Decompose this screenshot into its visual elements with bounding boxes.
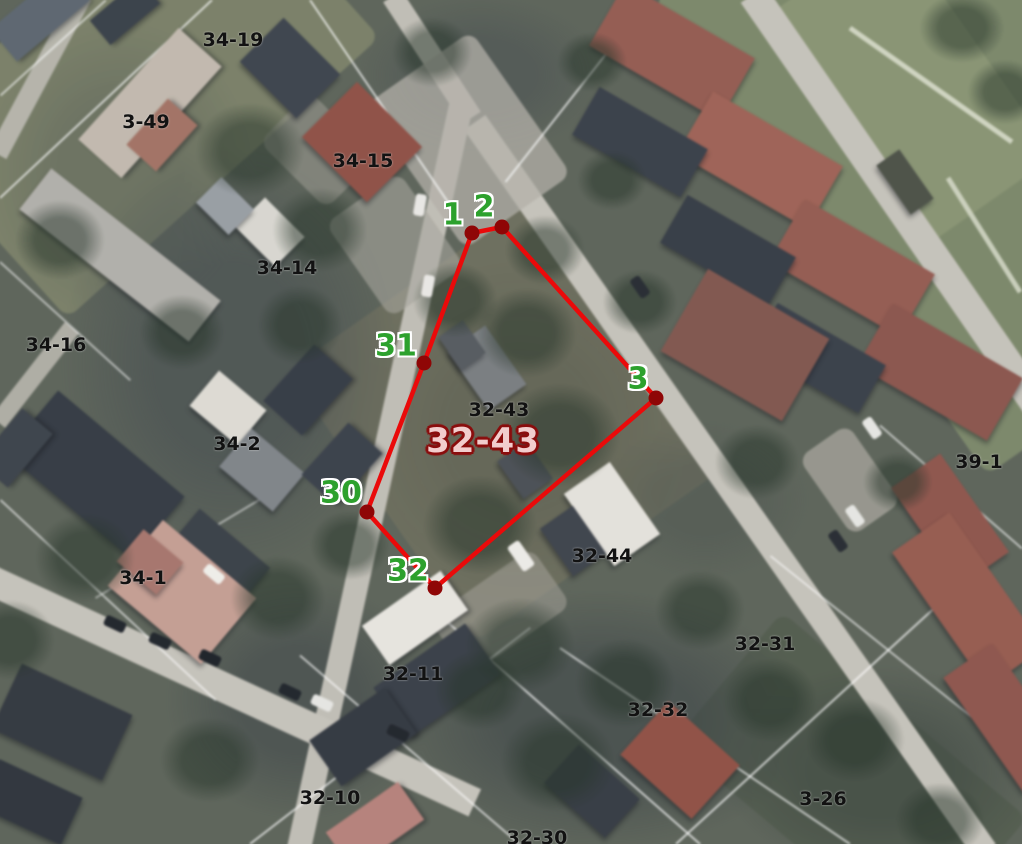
vertex-number-label-32: 32 [387, 554, 429, 589]
parcel-number-label: 39-1 [955, 451, 1003, 473]
parcel-number-label: 34-16 [26, 334, 87, 356]
parcel-number-label: 34-14 [257, 257, 318, 279]
parcel-number-label: 32-43 [469, 399, 530, 421]
parcel-number-label: 32-31 [735, 633, 796, 655]
selected-parcel-id-label: 32-43 [426, 421, 540, 461]
vertex-number-label-3: 3 [628, 362, 649, 397]
parcel-number-label: 34-1 [119, 567, 167, 589]
aerial-map[interactable]: 34-193-4934-1534-1434-1634-234-139-132-4… [0, 0, 1022, 844]
parcel-number-label: 32-32 [628, 699, 689, 721]
parcel-number-label: 32-11 [383, 663, 444, 685]
parcel-number-label: 34-19 [203, 29, 264, 51]
parcel-number-label: 3-49 [122, 111, 170, 133]
vertex-number-label-31: 31 [375, 329, 417, 364]
parcel-number-label: 3-26 [799, 788, 847, 810]
parcel-number-label: 32-30 [507, 827, 568, 844]
parcel-number-label: 32-44 [572, 545, 633, 567]
vertex-number-label-30: 30 [320, 476, 362, 511]
vertex-number-label-2: 2 [474, 190, 495, 225]
map-labels-layer: 34-193-4934-1534-1434-1634-234-139-132-4… [0, 0, 1022, 844]
parcel-number-label: 32-10 [300, 787, 361, 809]
parcel-number-label: 34-2 [213, 433, 261, 455]
parcel-number-label: 34-15 [333, 150, 394, 172]
vertex-number-label-1: 1 [443, 198, 464, 233]
